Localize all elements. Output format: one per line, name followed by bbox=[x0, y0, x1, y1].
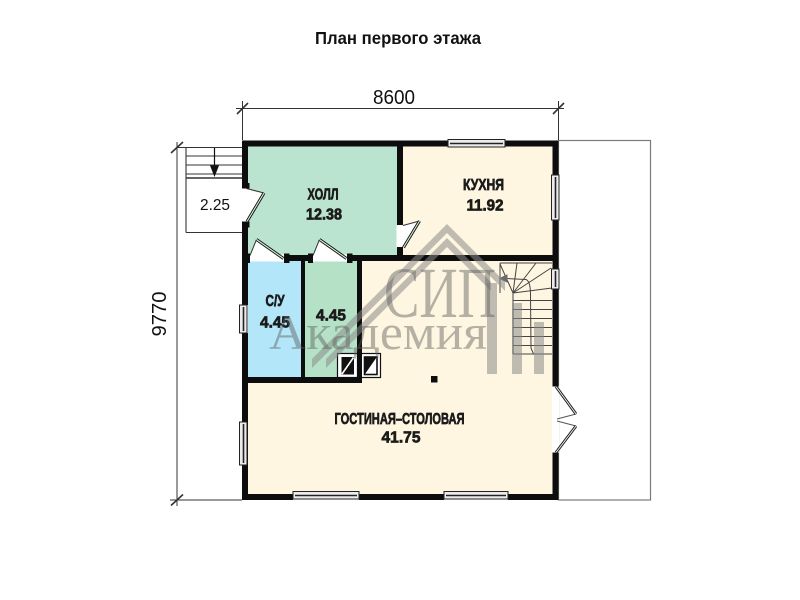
svg-text:41.75: 41.75 bbox=[382, 430, 421, 447]
svg-text:2.25: 2.25 bbox=[200, 197, 230, 214]
svg-text:План первого этажа: План первого этажа bbox=[315, 28, 481, 48]
svg-text:КУХНЯ: КУХНЯ bbox=[463, 177, 504, 194]
svg-text:ГОСТИНАЯ–СТОЛОВАЯ: ГОСТИНАЯ–СТОЛОВАЯ bbox=[335, 411, 465, 428]
svg-text:11.92: 11.92 bbox=[467, 198, 504, 215]
svg-text:12.38: 12.38 bbox=[306, 207, 342, 224]
svg-text:Академия: Академия bbox=[269, 304, 487, 360]
svg-text:ХОЛЛ: ХОЛЛ bbox=[308, 187, 339, 204]
svg-text:8600: 8600 bbox=[373, 87, 415, 109]
svg-text:9770: 9770 bbox=[149, 292, 171, 337]
